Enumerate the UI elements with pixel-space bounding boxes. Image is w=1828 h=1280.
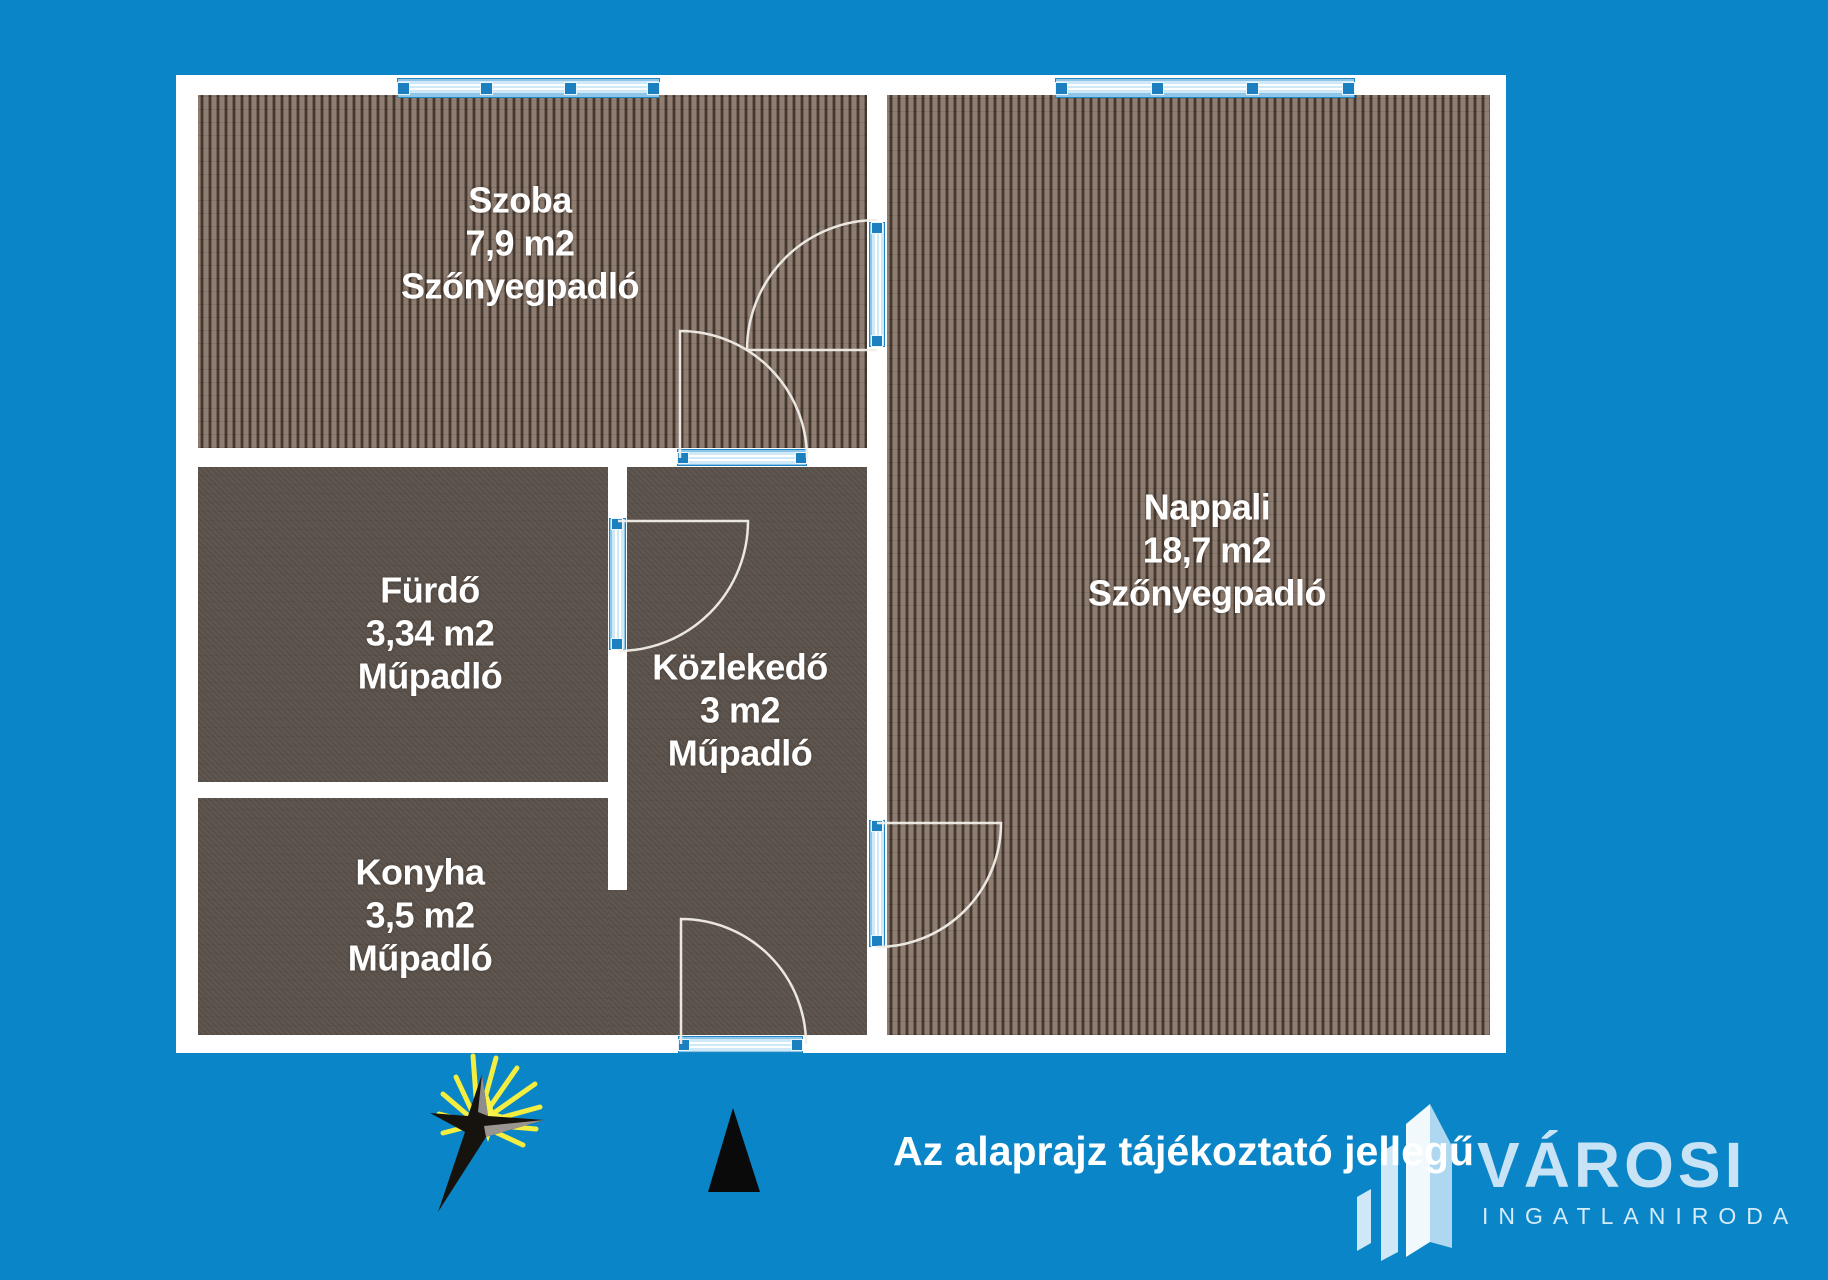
entrance-door-swing bbox=[681, 919, 806, 1044]
logo-title: VÁROSI bbox=[1477, 1128, 1746, 1202]
szoba-nappali-door-swing bbox=[747, 220, 877, 350]
north-triangle-icon bbox=[708, 1108, 760, 1192]
floorplan-disclaimer: Az alaprajz tájékoztató jellegű bbox=[893, 1128, 1474, 1175]
door-swing-arcs bbox=[0, 0, 1828, 1280]
kozlekedo-nappali-door-swing bbox=[877, 823, 1001, 947]
sun-star-icon bbox=[430, 1056, 544, 1212]
floorplan-canvas: Szoba 7,9 m2 Szőnyegpadló Nappali 18,7 m… bbox=[0, 0, 1828, 1280]
logo-subtitle: INGATLANIRODA bbox=[1482, 1203, 1798, 1230]
furdo-door-swing bbox=[618, 521, 748, 651]
